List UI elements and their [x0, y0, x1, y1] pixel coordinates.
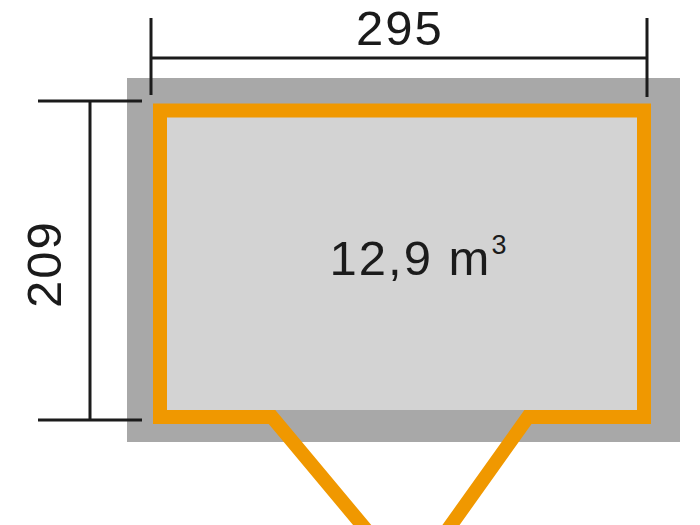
height-dimension-value: 209	[18, 184, 70, 344]
volume-value: 12,9 m	[330, 231, 492, 285]
volume-label: 12,9 m3	[308, 228, 528, 288]
width-dimension-value: 295	[330, 0, 470, 56]
shed-dimension-diagram: 295 209 12,9 m3	[0, 0, 700, 525]
volume-exponent: 3	[491, 230, 506, 260]
